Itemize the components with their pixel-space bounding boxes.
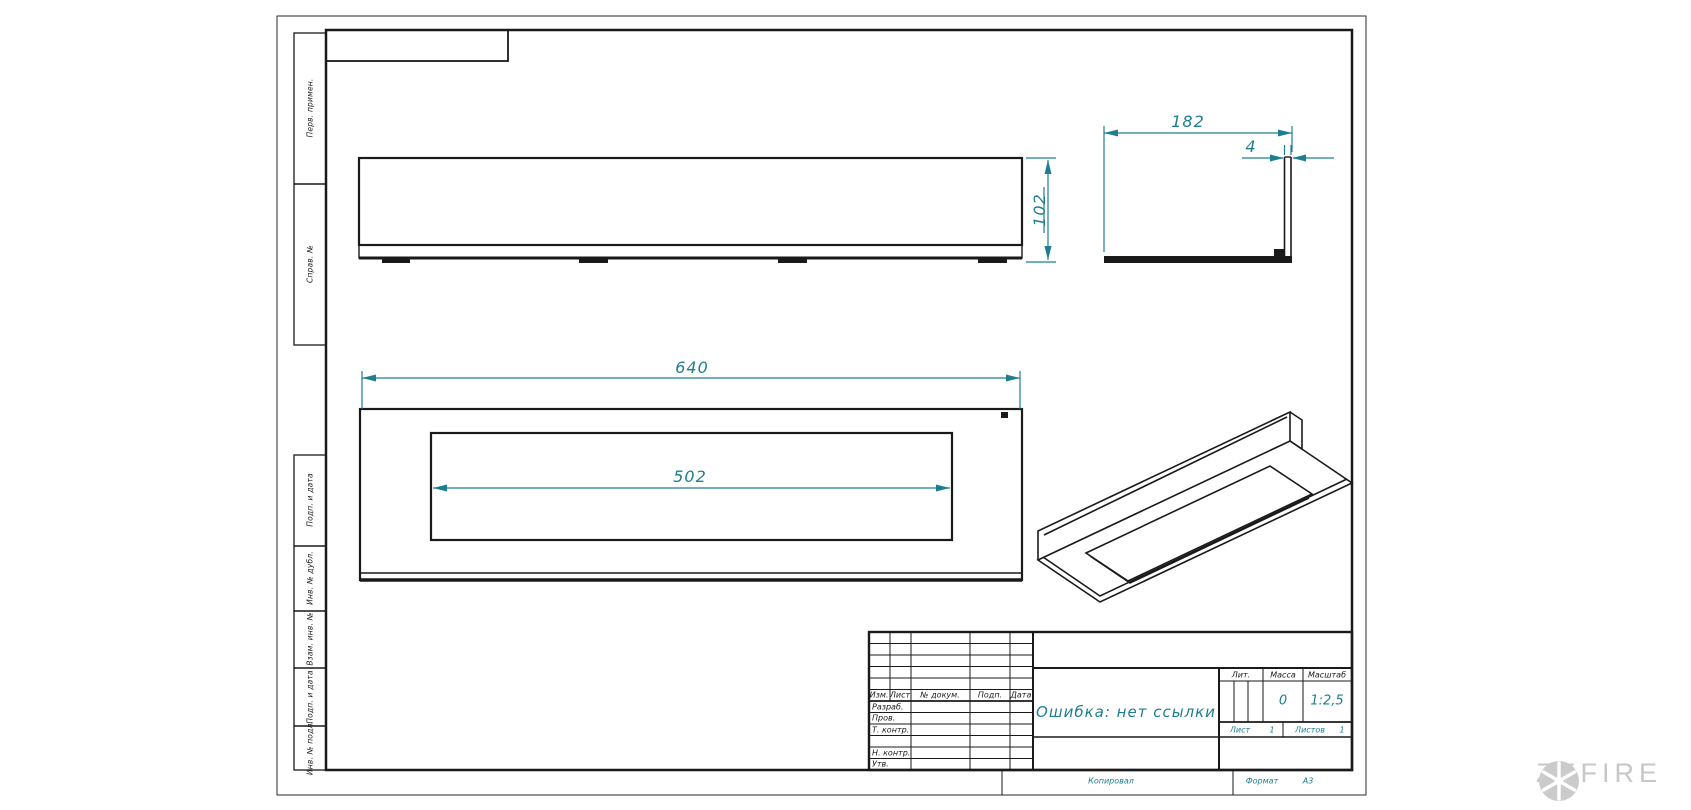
snowflake-logo-icon [1536, 758, 1582, 804]
tb-row-tcontrol: Т. контр. [872, 726, 909, 735]
drawing-frame [326, 30, 1352, 770]
tb-sheets-value: 1 [1339, 726, 1344, 735]
margin-label-first-use: Перв. примен. [306, 79, 315, 138]
tb-sheet-value: 1 [1269, 726, 1274, 735]
tb-sheet-label: Лист [1230, 726, 1250, 735]
tb-mass-label: Масса [1270, 671, 1296, 680]
plan-view [360, 409, 1022, 580]
tb-row-approved: Утв. [872, 760, 889, 769]
tb-row-developer: Разраб. [872, 703, 903, 712]
dim-opening-label: 502 [673, 467, 707, 486]
front-view [359, 158, 1022, 263]
margin-label-sign-date-1: Подп. и дата [306, 473, 315, 527]
tb-document-title: Ошибка: нет ссылки [1036, 703, 1216, 721]
margin-label-inv-original: Инв. № подл. [306, 721, 315, 775]
footer-format-label: Формат [1246, 777, 1278, 786]
plan-view-marker-dot [1001, 412, 1008, 418]
dim-depth-label: 182 [1171, 112, 1205, 131]
dim-thickness-label: 4 [1245, 137, 1256, 156]
dim-height-label: 102 [1030, 193, 1049, 227]
tb-header-list: Лист [890, 691, 910, 700]
dim-length-label: 640 [675, 358, 709, 377]
tb-mass-value: 0 [1279, 694, 1287, 709]
tb-scale-label: Масштаб [1308, 671, 1346, 680]
brand-watermark: ZEFIRE [1536, 758, 1662, 789]
tb-header-docnum: № докум. [920, 691, 959, 700]
isometric-view [1038, 412, 1352, 602]
margin-label-inv-duplicate: Инв. № дубл. [306, 551, 315, 605]
tb-row-checker: Пров. [872, 714, 895, 723]
tb-sheets-label: Листов [1295, 726, 1325, 735]
tb-header-izm: Изм. [870, 691, 889, 700]
margin-label-sign-date-2: Подп. и дата [306, 670, 315, 724]
tb-row-ncontrol: Н. контр. [872, 749, 910, 758]
footer-format-value: А3 [1303, 777, 1314, 786]
dimension-arrows [362, 130, 1306, 492]
margin-label-reference-no: Справ. № [306, 245, 315, 283]
tb-header-podp: Подп. [978, 691, 1002, 700]
drawing-sheet: 640 502 182 4 102 [0, 0, 1691, 810]
margin-label-replace-inv: Взам. инв. № [306, 612, 315, 665]
side-view [1104, 157, 1292, 263]
drawing-canvas: 640 502 182 4 102 [0, 0, 1691, 810]
tb-header-data: Дата [1011, 691, 1032, 700]
footer-copied-by: Копировал [1088, 777, 1134, 786]
tb-lit-label: Лит. [1232, 671, 1250, 680]
dimension-labels: 640 502 182 4 102 [673, 112, 1256, 486]
tb-scale-value: 1:2,5 [1310, 694, 1343, 709]
